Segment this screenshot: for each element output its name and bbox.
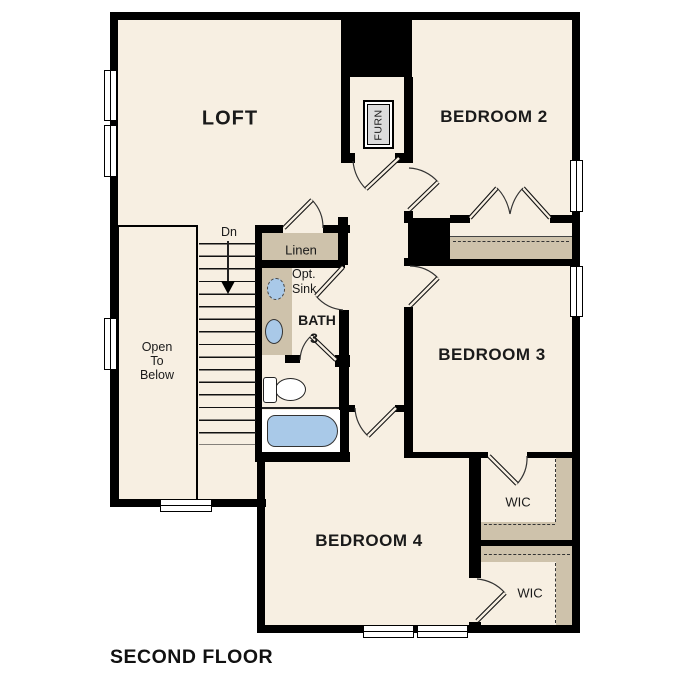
wall [404,258,580,266]
window [363,625,414,638]
wall [257,452,265,633]
window [417,625,468,638]
room-label-bedroom3: BEDROOM 3 [438,345,545,365]
wic-shelf [556,546,572,625]
window [570,160,583,212]
closet-rod [453,241,569,242]
wall [110,12,580,20]
sink [265,319,283,344]
wall [404,77,413,163]
closet-rod [484,554,570,555]
toilet-tank [263,377,277,403]
toilet-bowl [275,378,306,401]
room-label-bedroom4: BEDROOM 4 [315,531,422,551]
wall [550,215,572,223]
window [160,499,212,512]
window [104,70,117,121]
stair-arrow-shaft [227,241,229,283]
wall [335,355,350,367]
bathtub [267,415,338,447]
closet-rod [555,459,556,522]
wall [255,452,350,462]
closet-shelf [450,236,572,259]
wall [527,452,580,458]
chase-block [346,12,412,77]
wall [339,310,349,462]
wall [572,12,580,633]
room-label-bath: BATH [298,312,336,328]
room-label-bath-number: 3 [310,330,318,346]
stairs-down-label: Dn [221,225,237,239]
wall [341,20,350,163]
wall [343,153,355,163]
wall [450,215,470,223]
tub-platform-edge [262,407,339,409]
wall-block [408,218,450,258]
window [104,318,117,370]
closet-rod [484,524,555,525]
room-label-loft: LOFT [202,108,258,131]
furnace-label: FURN [373,109,385,140]
wall [469,622,481,633]
plan-title: SECOND FLOOR [110,646,273,669]
stair-arrow-head [221,281,235,294]
room-label-wic-bottom: WIC [517,586,542,601]
furnace-unit: FURN [363,100,394,149]
optional-sink [267,278,285,300]
window [104,125,117,177]
room-label-bedroom2: BEDROOM 2 [440,107,547,127]
window [570,266,583,317]
open-to-below-label: Open To Below [117,340,197,382]
opt-sink-label: Opt. Sink [292,267,316,296]
wall [404,307,413,458]
wall [395,405,413,412]
wall [346,405,355,412]
wall [285,355,300,363]
furnace-unit-inner: FURN [367,104,390,145]
room-label-linen: Linen [285,243,317,258]
closet-rod [555,563,556,623]
wall [469,458,481,578]
wall [338,217,348,265]
wall [395,153,412,163]
room-label-wic-top: WIC [505,495,530,510]
floor-plan: FURN [0,0,687,687]
